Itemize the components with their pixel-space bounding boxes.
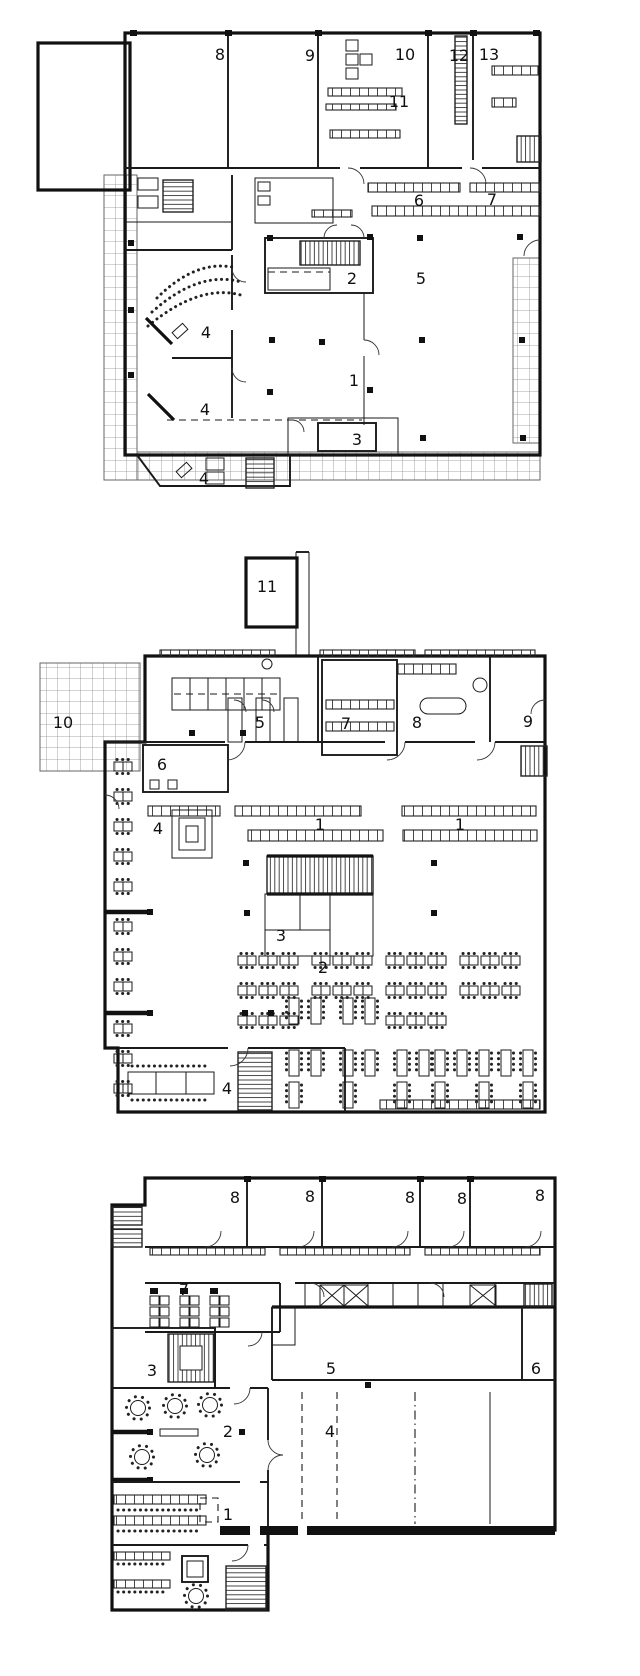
room-label-7: 7: [487, 190, 497, 209]
counter: [235, 806, 361, 816]
counter: [114, 1516, 206, 1525]
floor-plan-sheet: 8 9 10 11 12 13 6 7 2 5 4 4 4 1 3: [0, 0, 640, 1676]
plan-top: 8 9 10 11 12 13 6 7 2 5 4 4 4 1 3: [38, 30, 541, 488]
room-label-11: 11: [389, 92, 409, 111]
room-label-1: 1: [349, 371, 359, 390]
room-label-5: 5: [326, 1359, 336, 1378]
counter: [402, 806, 536, 816]
stair: [246, 458, 274, 488]
room-label-1: 1: [455, 815, 465, 834]
room-label-4: 4: [222, 1079, 232, 1098]
counter: [403, 830, 537, 841]
room-label-2: 2: [318, 958, 328, 977]
room-label-9: 9: [523, 712, 533, 731]
room-label-4: 4: [199, 469, 209, 488]
room-label-8: 8: [457, 1189, 467, 1208]
terrace-grid: [104, 175, 137, 480]
room-label-13: 13: [479, 45, 499, 64]
stair: [163, 180, 193, 212]
room-label-12: 12: [449, 46, 469, 65]
room-label-8: 8: [305, 1187, 315, 1206]
stair: [521, 746, 547, 776]
counter: [372, 206, 540, 216]
room-label-6: 6: [157, 755, 167, 774]
floor-plans-drawing: 8 9 10 11 12 13 6 7 2 5 4 4 4 1 3: [0, 0, 640, 1676]
counter: [148, 806, 220, 816]
elevator: [320, 1285, 496, 1306]
room-label-6: 6: [414, 191, 424, 210]
room-label-5: 5: [255, 713, 265, 732]
seminar-seating: [148, 266, 244, 326]
annex-hall: [38, 43, 130, 190]
room-3-box: [318, 423, 376, 451]
room-label-1: 1: [315, 815, 325, 834]
room-label-7: 7: [341, 714, 351, 733]
room-label-3: 3: [276, 926, 286, 945]
counter: [470, 183, 540, 192]
room-label-3: 3: [352, 430, 362, 449]
room-label-4: 4: [325, 1422, 335, 1441]
room-label-4: 4: [201, 323, 211, 342]
meeting-table: [128, 1072, 214, 1094]
room-label-11: 11: [257, 577, 277, 596]
servery-6: [143, 745, 228, 792]
counter: [114, 1495, 206, 1504]
room-label-8: 8: [215, 45, 225, 64]
room-label-8: 8: [412, 713, 422, 732]
stair: [517, 136, 541, 162]
terrace-grid: [513, 258, 540, 443]
room-label-1: 1: [223, 1505, 233, 1524]
room-label-10: 10: [395, 45, 415, 64]
room-label-8: 8: [405, 1188, 415, 1207]
room-label-4: 4: [153, 819, 163, 838]
room-label-9: 9: [305, 46, 315, 65]
room-label-5: 5: [416, 269, 426, 288]
room-label-2: 2: [223, 1422, 233, 1441]
plan-middle: 11 10 5 6 7 8 9 1 1 4 3 2 4: [40, 552, 547, 1112]
stair-core: [267, 856, 373, 894]
room-label-7: 7: [179, 1280, 189, 1299]
plan-bottom: 8 8 8 8 8 7 3 5 6 2 4 1: [112, 1176, 555, 1610]
room-label-3: 3: [147, 1361, 157, 1380]
room-label-2: 2: [347, 269, 357, 288]
mailbox-shelves: [150, 1288, 229, 1327]
room-label-10: 10: [53, 713, 73, 732]
stair: [524, 1284, 552, 1306]
room-label-8: 8: [230, 1188, 240, 1207]
stair: [226, 1566, 266, 1610]
room-label-4: 4: [200, 400, 210, 419]
room-label-6: 6: [531, 1359, 541, 1378]
room-label-8: 8: [535, 1186, 545, 1205]
